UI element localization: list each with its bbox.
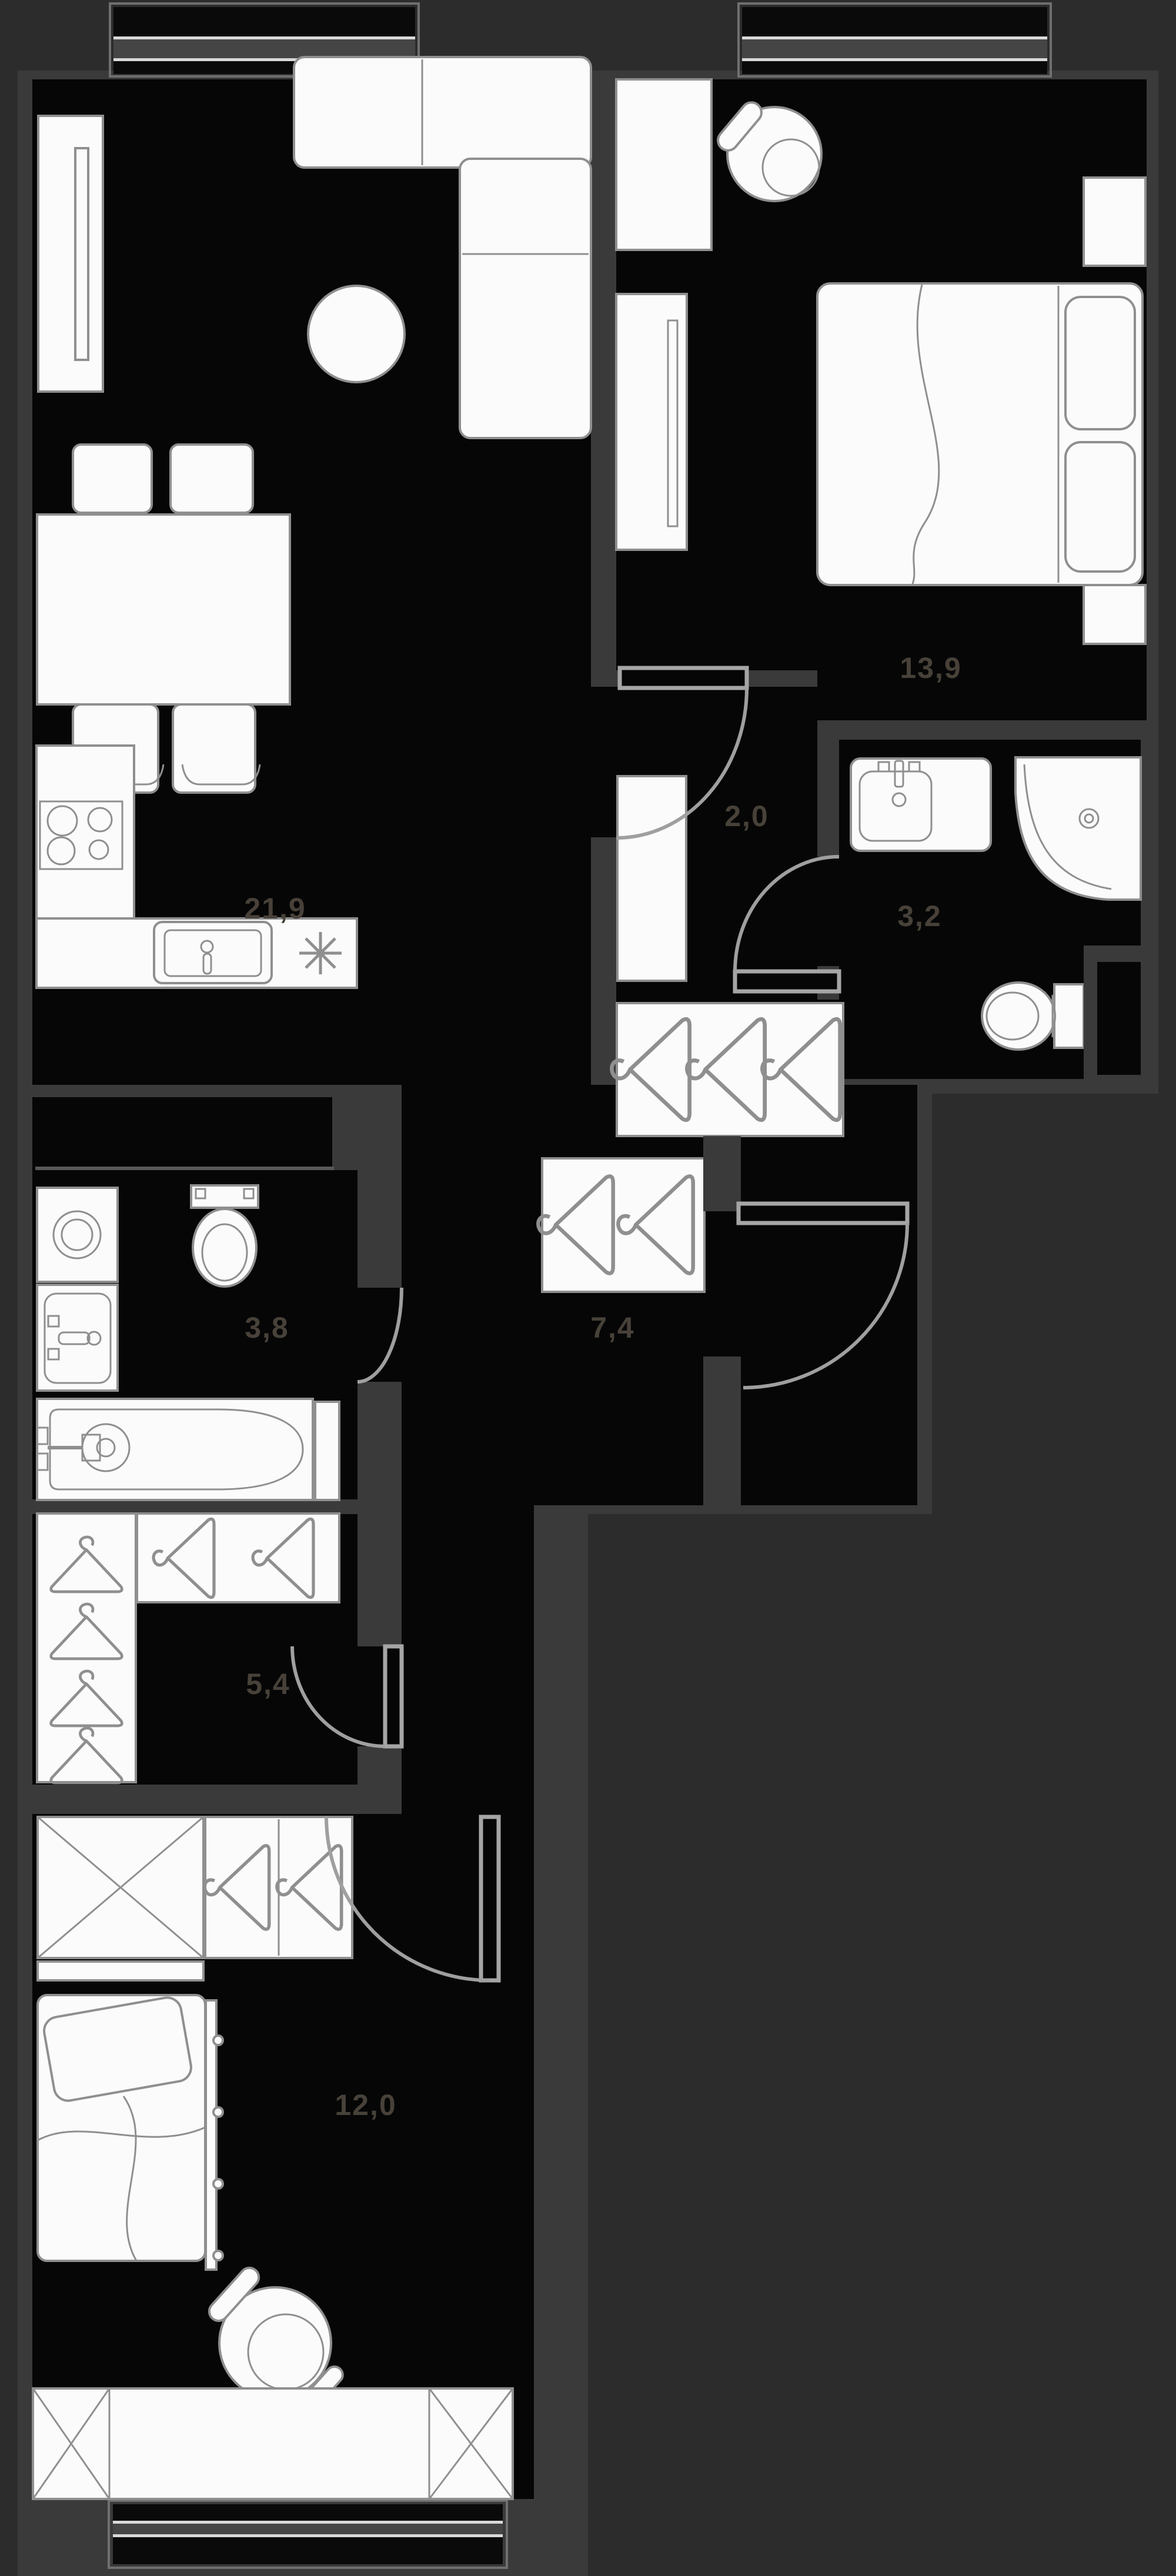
bed-single (38, 1995, 205, 2261)
bathroom-sink (37, 1285, 118, 1391)
dining-table (37, 514, 290, 704)
door-leaf (385, 1646, 402, 1746)
duct-shaft-inner (1097, 962, 1141, 1075)
nightstand (1084, 178, 1145, 266)
washing-machine-body (37, 1188, 118, 1282)
wardrobe-hangers (205, 1817, 352, 1958)
sink-counter (37, 1285, 118, 1391)
bath-shelf (315, 1402, 339, 1500)
desk (33, 2388, 513, 2499)
sofa-right-section (460, 159, 591, 438)
closet-wardrobe-left (37, 1513, 136, 1783)
doorway-vestibule-bath (817, 857, 839, 966)
vanity-sink (851, 759, 991, 851)
bathtub (37, 1399, 313, 1500)
window-sill (742, 39, 1047, 58)
tv-stand (38, 116, 103, 392)
room-area-label: 13,9 (900, 651, 961, 684)
window-sash (742, 61, 1047, 74)
radiator-knob (213, 2036, 223, 2045)
toilet (191, 1185, 258, 1287)
doorway-living-vestibule (591, 687, 616, 837)
window-line (113, 2521, 503, 2524)
room-area-label: 12,0 (335, 2089, 396, 2121)
radiator-knob (213, 2251, 223, 2260)
dining-chair (73, 445, 152, 513)
entry-wall (703, 1357, 741, 1505)
kitchen-sink (154, 922, 272, 983)
wardrobe (616, 79, 711, 250)
pillow (1065, 297, 1135, 429)
window-sash (113, 7, 415, 36)
window-line (742, 36, 1047, 39)
room-area-label: 21,9 (244, 892, 306, 925)
window-line (742, 58, 1047, 61)
window-sash (113, 2537, 503, 2564)
dining-chair (171, 445, 253, 513)
tv-icon (75, 148, 88, 360)
dresser (616, 294, 687, 550)
bed-double (817, 283, 1142, 585)
washing-machine (37, 1188, 118, 1282)
wardrobe (617, 1003, 843, 1136)
wardrobe-base (38, 1962, 203, 1980)
door-leaf (620, 668, 747, 688)
sofa-top-section (294, 57, 591, 168)
room-area-label: 5,4 (246, 1668, 290, 1700)
door-leaf (739, 1204, 907, 1223)
coffee-table (308, 286, 405, 382)
window-sash (113, 2504, 503, 2521)
window-top-right (739, 4, 1051, 76)
closet-wardrobe-top (137, 1513, 339, 1602)
window-line (113, 36, 415, 39)
wardrobe (542, 1158, 704, 1292)
hall-wardrobe-small (538, 1158, 704, 1292)
window-bottom (109, 2501, 507, 2568)
floor-plan-page: 21,9 13,9 2,0 (0, 0, 1176, 2576)
wardrobe-crossed (38, 1817, 203, 1980)
door-leaf (481, 1817, 499, 1980)
dining-chair (173, 704, 255, 793)
nightstand (1084, 585, 1145, 644)
room-area-label: 3,8 (245, 1311, 289, 1344)
toilet-tank (1054, 984, 1084, 1048)
room-area-label: 3,2 (897, 900, 942, 933)
radiator-knob (213, 2179, 223, 2189)
window-line (113, 2534, 503, 2537)
window-sill (113, 2524, 503, 2534)
toilet (982, 983, 1084, 1050)
room-area-label: 7,4 (590, 1311, 635, 1344)
door-leaf (735, 971, 839, 991)
entry-wall (703, 1136, 741, 1211)
hall-wardrobe-top (612, 1003, 843, 1136)
hall-cabinet (617, 776, 686, 981)
floor-plan: 21,9 13,9 2,0 (0, 0, 1176, 2576)
room-area-label: 2,0 (724, 800, 769, 833)
shaft-edge-line (35, 1167, 334, 1170)
radiator-knob (213, 2107, 223, 2117)
shaft-wall (332, 1097, 358, 1170)
window-sash (742, 7, 1047, 36)
window-sill (113, 39, 415, 58)
pillow (1065, 442, 1135, 572)
